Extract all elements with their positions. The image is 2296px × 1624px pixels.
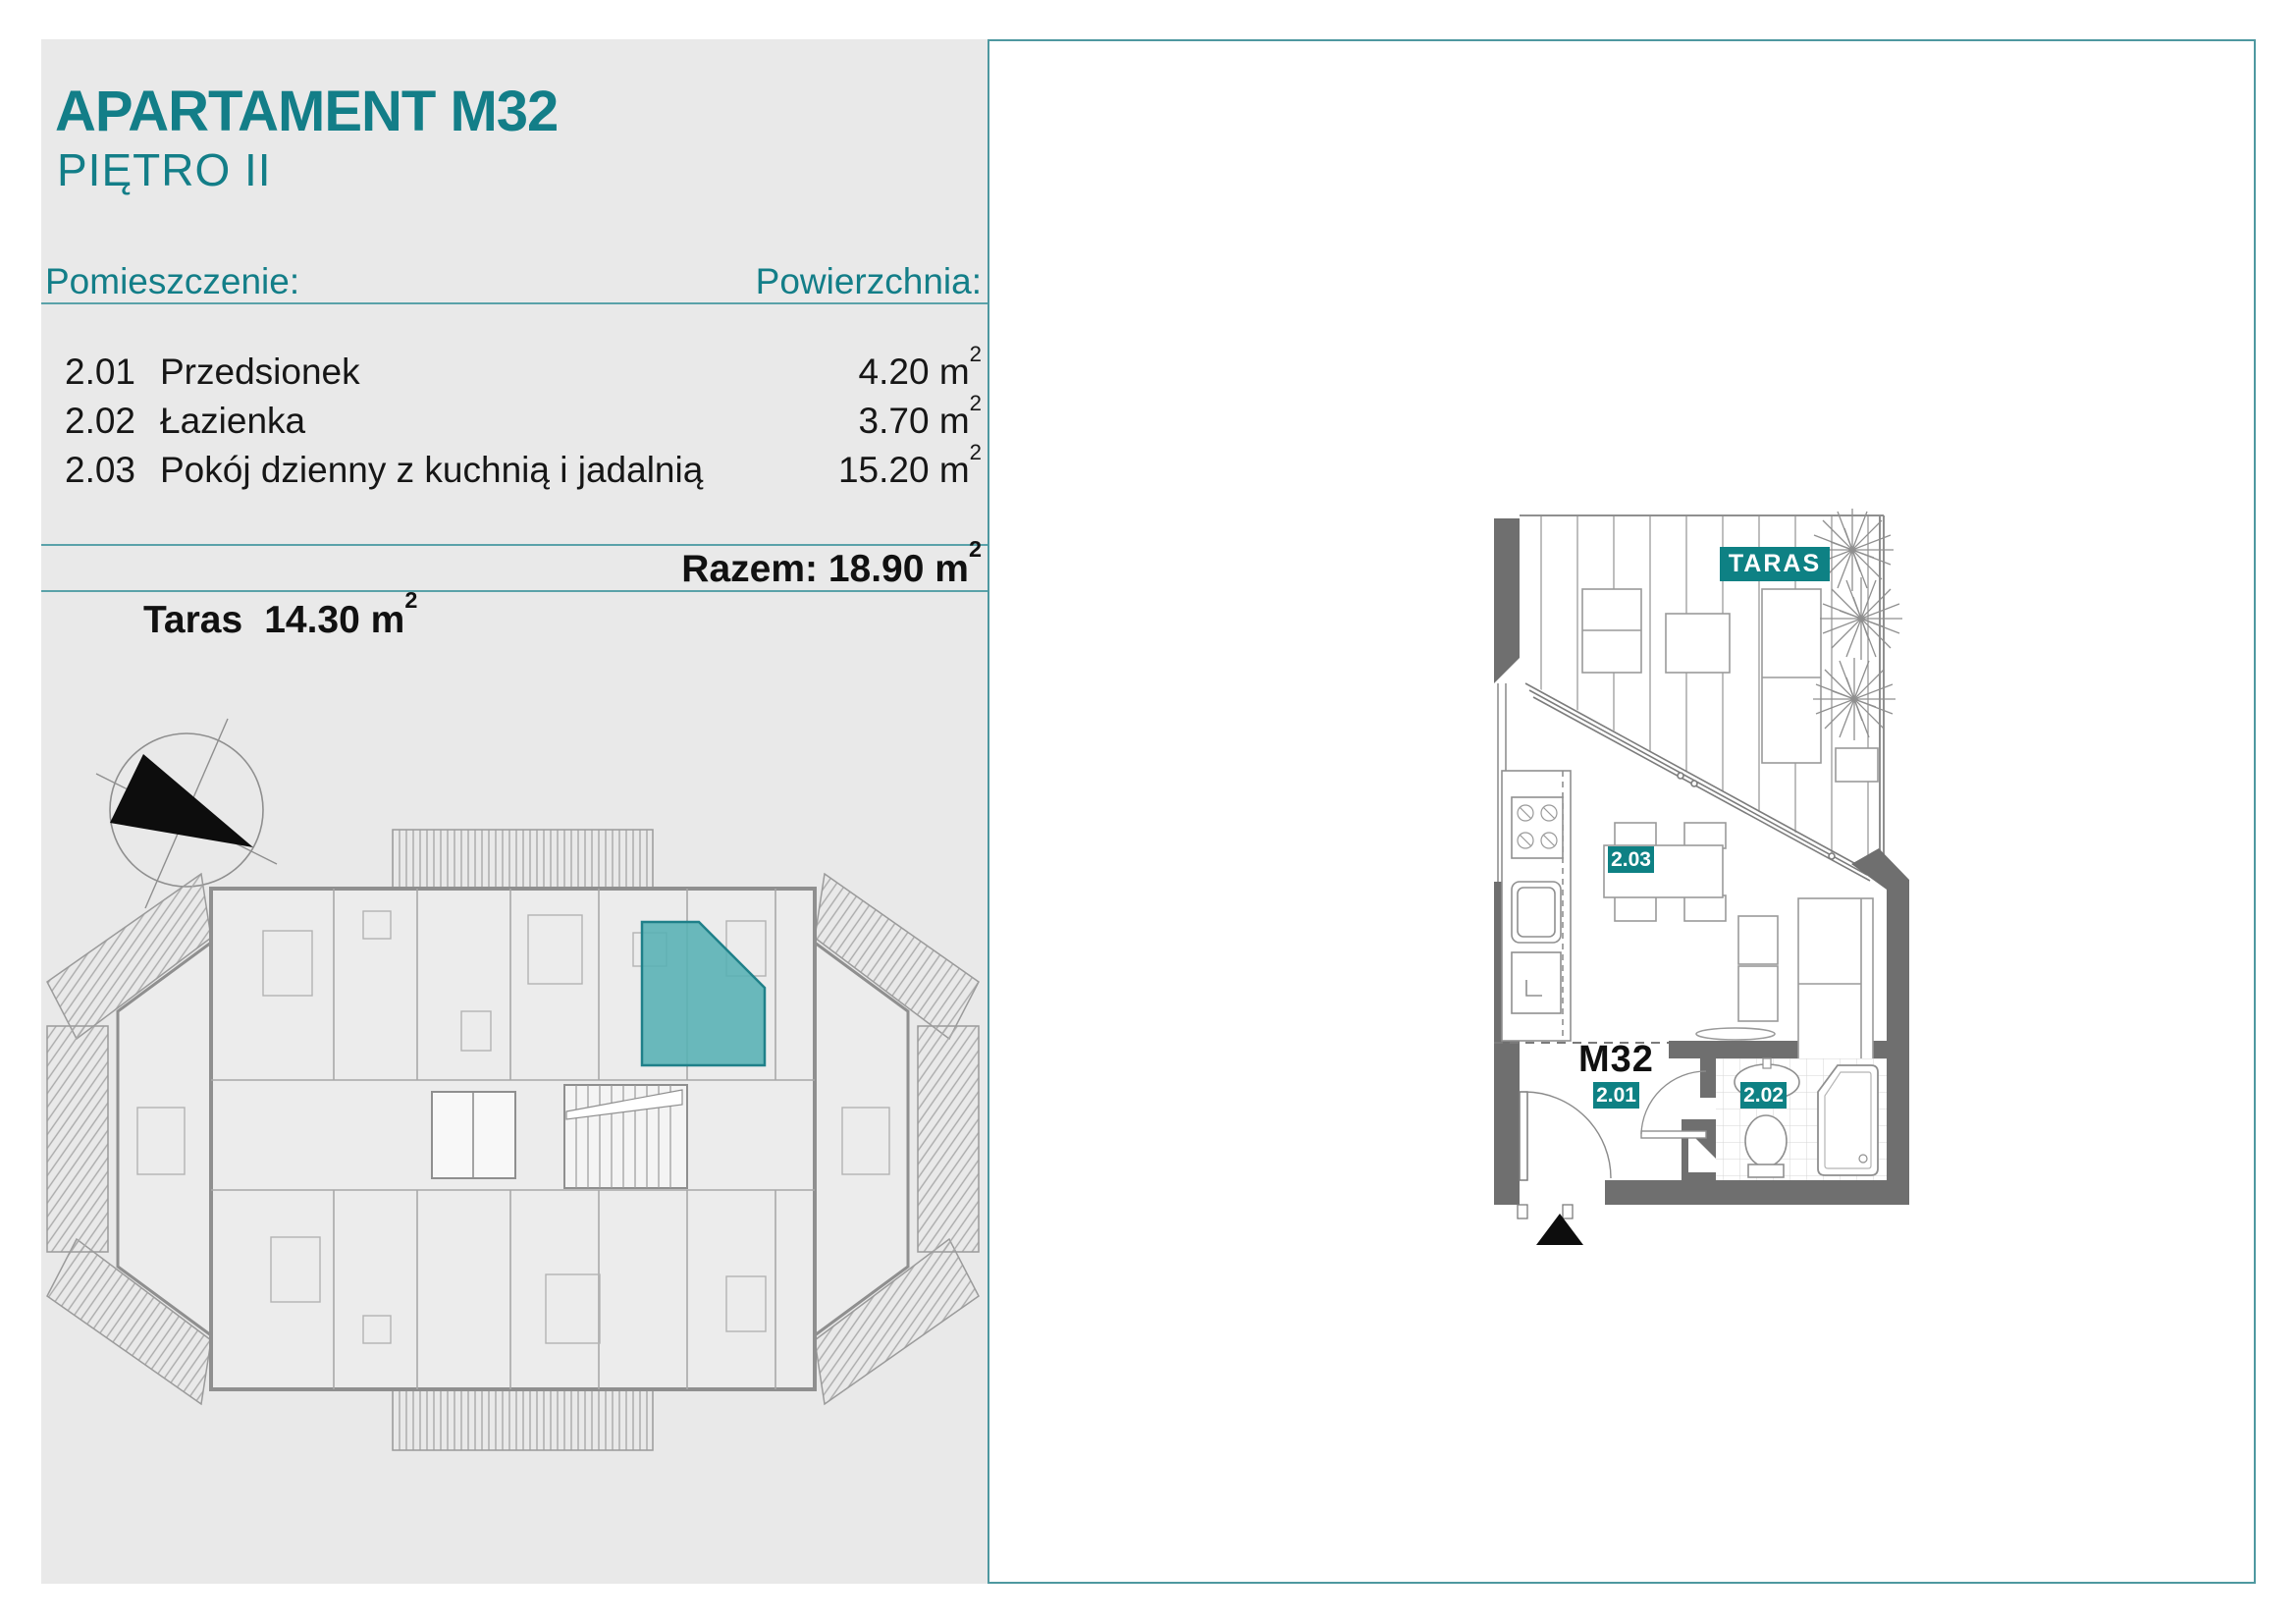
palm-plant-icon [1813,658,1896,740]
room-name: Łazienka [160,401,859,442]
room-area: 4.20 m2 [859,352,982,393]
corridor-window [432,1092,515,1178]
page-title: APARTAMENT M32 [55,79,558,144]
bathroom [1641,1058,1887,1180]
room-201-chip: 2.01 [1593,1082,1639,1109]
table-header: Pomieszczenie: Powierzchnia: [45,261,982,302]
balcony-hatch-left-tip [47,1026,108,1252]
room-202-chip: 2.02 [1740,1082,1787,1109]
table-row: 2.01 Przedsionek 4.20 m2 [41,352,982,401]
column-area-label: Powierzchnia: [756,261,982,302]
table-row: 2.03 Pokój dzienny z kuchnią i jadalnią … [41,450,982,499]
terrace-area: Taras14.30 m2 [143,599,417,642]
room-name: Pokój dzienny z kuchnią i jadalnią [160,450,838,491]
balcony-hatch-right-tip [918,1026,979,1252]
compass-rose-icon [96,719,277,908]
table-row: 2.02 Łazienka 3.70 m2 [41,401,982,450]
apartment-card-page: { "header": { "title": "APARTAMENT M32",… [0,0,2296,1624]
room-area: 15.20 m2 [838,450,982,491]
room-203-chip: 2.03 [1608,846,1654,873]
shower-tray [1818,1065,1878,1175]
north-arrow-icon [1536,1214,1583,1245]
entrance-door [1518,1092,1611,1218]
detail-floorplan-svg [1472,491,1924,1267]
balcony-hatch-top [393,830,653,889]
room-number: 2.02 [41,401,160,442]
overview-floorplan-svg [39,687,987,1473]
room-area: 3.70 m2 [859,401,982,442]
floor-subtitle: PIĘTRO II [57,143,272,196]
room-number: 2.01 [41,352,160,393]
balcony-hatch-bottom [393,1389,653,1450]
apartment-id-label: M32 [1578,1039,1654,1081]
room-table: 2.01 Przedsionek 4.20 m2 2.02 Łazienka 3… [41,352,982,499]
column-room-label: Pomieszczenie: [45,261,299,302]
toilet [1745,1115,1787,1166]
total-rule-bottom [41,590,988,592]
bathroom-door-leaf [1641,1131,1706,1138]
staircase [564,1085,687,1188]
kitchen-counter [1502,771,1571,1041]
header-rule [41,302,988,304]
room-name: Przedsionek [160,352,859,393]
room-number: 2.03 [41,450,160,491]
building-left-wing [118,943,211,1335]
terrace-label-chip: TARAS [1720,547,1830,581]
total-rule-top [41,544,988,546]
palm-plant-icon [1820,577,1902,660]
building-right-wing [815,943,908,1335]
total-area: Razem: 18.90 m2 [681,548,982,591]
